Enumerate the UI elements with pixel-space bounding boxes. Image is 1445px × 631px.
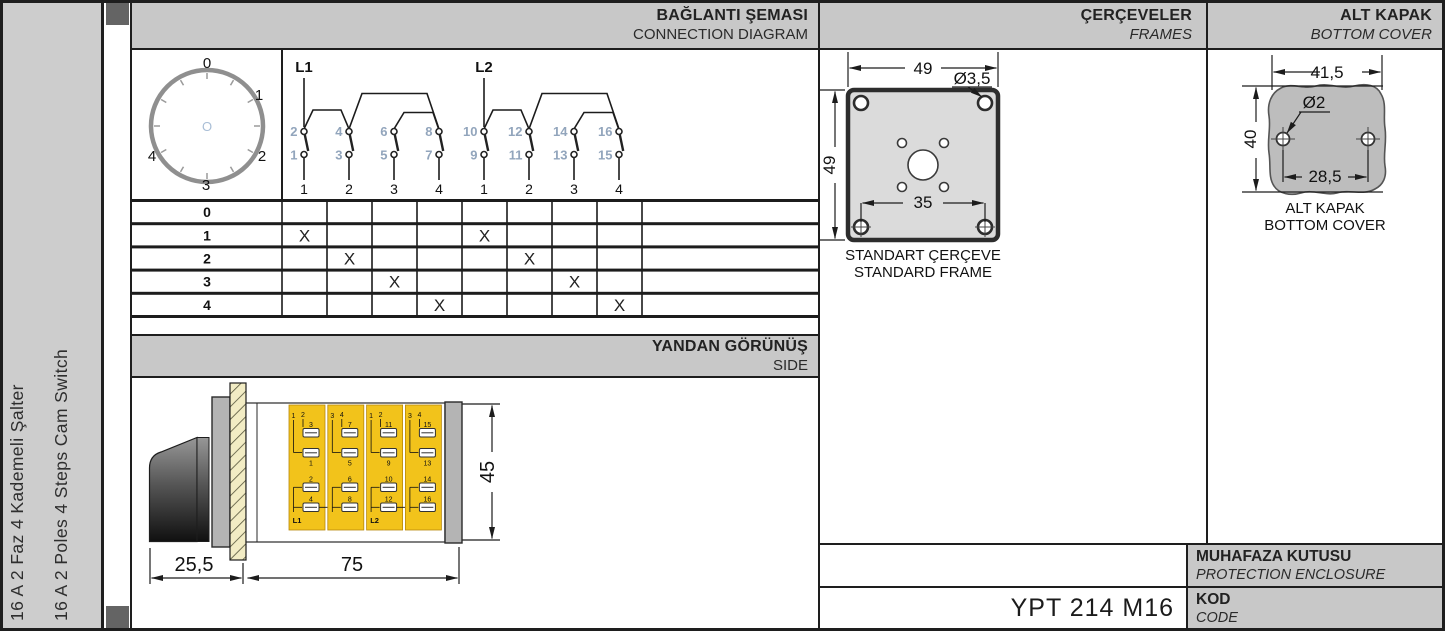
cover-dim-height: 40	[1241, 130, 1260, 149]
module-terminal-number: 15	[424, 422, 432, 429]
contact-groups: L1211432653874L21091121121413316154	[290, 59, 623, 197]
dial-pos-4: 4	[148, 148, 156, 165]
module-pair-b: 2	[301, 412, 305, 419]
protection-en: PROTECTION ENCLOSURE	[1196, 566, 1442, 584]
product-code: YPT 214 M16	[820, 588, 1186, 628]
frame-caption-en: STANDARD FRAME	[854, 264, 992, 281]
module-terminal-number: 7	[348, 422, 352, 429]
header-bottom-cover-tr: ALT KAPAK	[1340, 6, 1432, 26]
table-vline	[281, 199, 283, 318]
header-connection-diagram: BAĞLANTI ŞEMASI CONNECTION DIAGRAM	[132, 3, 818, 50]
terminal-top	[346, 129, 352, 135]
terminal-bottom	[616, 152, 622, 158]
header-frames-tr: ÇERÇEVELER	[1081, 6, 1192, 26]
table-mark: X	[479, 226, 490, 245]
terminal-number-top: 6	[380, 124, 387, 139]
label-code: KOD CODE	[1186, 588, 1442, 628]
terminal-bottom	[391, 152, 397, 158]
table-vline	[506, 199, 508, 318]
output-number: 2	[345, 181, 353, 197]
module-terminal-number: 8	[348, 497, 352, 504]
module-terminal-number: 14	[424, 477, 432, 484]
module-terminal-number: 11	[385, 422, 392, 429]
table-vline	[641, 199, 643, 318]
terminal-number-bottom: 7	[425, 148, 432, 163]
table-mark: X	[389, 273, 400, 292]
module-pair-a: 1	[292, 413, 296, 420]
module-4: 3415131416	[405, 405, 441, 530]
table-hline	[132, 222, 818, 225]
knob	[150, 438, 198, 542]
terminal-top	[436, 129, 442, 135]
module-terminal-number: 1	[309, 461, 313, 468]
module-pair-b: 2	[379, 412, 383, 419]
table-vline	[416, 199, 418, 318]
switch-blade	[485, 135, 488, 151]
output-number: 4	[615, 181, 623, 197]
table-row-label: 2	[203, 251, 211, 267]
dial-tick	[181, 80, 184, 85]
frame-dim-width: 49	[914, 59, 933, 78]
dial-pos-1: 1	[255, 87, 263, 104]
end-cap	[445, 402, 462, 543]
module-terminal-number: 2	[309, 477, 313, 484]
module-pair-b: 4	[340, 412, 344, 419]
binding-mark-top	[106, 3, 129, 25]
product-title-en: 16 A 2 Poles 4 Steps Cam Switch	[51, 349, 72, 621]
table-hline	[132, 292, 818, 295]
terminal-top	[301, 129, 307, 135]
switch-blade	[620, 135, 623, 151]
dim-depth: 25,5	[175, 554, 214, 576]
dim-length: 75	[341, 554, 363, 576]
header-side-tr: YANDAN GÖRÜNÜŞ	[652, 337, 808, 357]
contact-group-l1: L1211432653874	[290, 59, 443, 197]
terminal-bottom	[301, 152, 307, 158]
terminal-bottom	[436, 152, 442, 158]
table-vline	[371, 199, 373, 318]
table-hline	[132, 269, 818, 272]
table-mark: X	[434, 296, 445, 315]
front-plate	[212, 397, 230, 547]
product-title-tr: 16 A 2 Faz 4 Kademeli Şalter	[7, 384, 28, 621]
table-row-label: 0	[203, 204, 211, 220]
terminal-number-top: 8	[425, 124, 432, 139]
side-view-drawing: 123124L1347568121191012L23415131416 25,5…	[132, 378, 818, 628]
output-number: 1	[300, 181, 308, 197]
module-terminal-number: 5	[348, 461, 352, 468]
table-mark: X	[524, 250, 535, 269]
terminal-top	[391, 129, 397, 135]
switch-blade	[395, 135, 398, 151]
protection-tr: MUHAFAZA KUTUSU	[1196, 548, 1442, 566]
datasheet-page: 16 A 2 Faz 4 Kademeli Şalter 16 A 2 Pole…	[0, 0, 1445, 631]
contact-group-l2: L21091121121413316154	[463, 59, 623, 197]
dial-tick	[248, 100, 253, 103]
dial-pos-2: 2	[258, 148, 266, 165]
terminal-bottom	[571, 152, 577, 158]
terminal-bottom	[526, 152, 532, 158]
switch-blade	[350, 135, 353, 151]
module-terminal-number: 3	[309, 422, 313, 429]
header-bottom-cover: ALT KAPAK BOTTOM COVER	[1208, 3, 1442, 50]
output-number: 1	[480, 181, 488, 197]
table-mark: X	[299, 226, 310, 245]
table-hline	[132, 315, 818, 318]
knob-collar	[197, 438, 209, 542]
terminal-number-bottom: 3	[335, 148, 342, 163]
output-number: 4	[435, 181, 443, 197]
module-line-label: L2	[370, 516, 379, 525]
terminal-number-bottom: 5	[380, 148, 387, 163]
terminal-top	[616, 129, 622, 135]
table-mark: X	[569, 273, 580, 292]
table-hline	[132, 245, 818, 248]
frame-dim-hole: Ø3,5	[954, 69, 991, 88]
code-tr: KOD	[1196, 591, 1442, 609]
table-row-label: 3	[203, 274, 211, 290]
module-terminal-number: 16	[424, 497, 432, 504]
terminal-number-top: 14	[553, 124, 568, 139]
module-terminal-number: 6	[348, 477, 352, 484]
module-line-label: L1	[293, 516, 302, 525]
phase-label: L1	[295, 59, 313, 76]
cover-dim-holes: 28,5	[1308, 167, 1341, 186]
output-number: 3	[390, 181, 398, 197]
module-pair-a: 3	[408, 413, 412, 420]
dial-tick	[231, 80, 234, 85]
dial-tick	[161, 150, 166, 153]
bottom-cover-drawing: 28,5 Ø2 41,5 40 ALT KAPAK BOTTOM COVER	[1208, 50, 1442, 543]
terminal-top	[526, 129, 532, 135]
header-connection-tr: BAĞLANTI ŞEMASI	[657, 6, 808, 26]
switch-blade	[575, 135, 578, 151]
standard-frame-drawing: 49 49 35 Ø3,5 STANDART ÇERÇEVE STANDARD …	[820, 50, 1206, 543]
terminal-bottom	[346, 152, 352, 158]
dial-center-mark: O	[202, 119, 212, 134]
terminal-number-top: 10	[463, 124, 477, 139]
header-frames: ÇERÇEVELER FRAMES	[820, 3, 1206, 50]
sidebar: 16 A 2 Faz 4 Kademeli Şalter 16 A 2 Pole…	[3, 3, 104, 628]
header-bottom-cover-en: BOTTOM COVER	[1311, 26, 1432, 45]
table-mark: X	[614, 296, 625, 315]
header-connection-en: CONNECTION DIAGRAM	[633, 26, 808, 45]
cover-caption-en: BOTTOM COVER	[1264, 217, 1386, 234]
switch-blade	[530, 135, 533, 151]
module-pair-b: 4	[417, 412, 421, 419]
table-row-label: 1	[203, 227, 211, 243]
header-frames-en: FRAMES	[1129, 26, 1192, 45]
dial-tick	[248, 150, 253, 153]
binding-mark-bottom	[106, 606, 129, 628]
switch-blade	[440, 135, 443, 151]
terminal-number-top: 4	[335, 124, 343, 139]
dim-height: 45	[477, 461, 499, 483]
header-side-en: SIDE	[773, 357, 808, 376]
terminal-number-bottom: 1	[290, 148, 297, 163]
code-en: CODE	[1196, 609, 1442, 627]
module-terminal-number: 12	[385, 497, 393, 504]
rotary-dial: 0 1 2 3 4 O	[148, 55, 266, 194]
module-pair-a: 1	[369, 413, 373, 420]
cover-caption-tr: ALT KAPAK	[1285, 200, 1364, 217]
table-mark: X	[344, 250, 355, 269]
frame-dim-height: 49	[820, 156, 839, 175]
table-row-label: 4	[203, 297, 211, 313]
cover-dim-hole-d: Ø2	[1303, 93, 1326, 112]
module-terminal-number: 9	[387, 461, 391, 468]
switch-side-profile: 123124L1347568121191012L23415131416	[150, 383, 463, 560]
terminal-top	[571, 129, 577, 135]
terminal-number-top: 2	[290, 124, 297, 139]
table-hline	[132, 199, 818, 202]
header-side-view: YANDAN GÖRÜNÜŞ SIDE	[132, 334, 818, 378]
dial-tick	[161, 100, 166, 103]
module-terminal-number: 13	[424, 461, 432, 468]
table-vline	[596, 199, 598, 318]
table-vline	[551, 199, 553, 318]
panel-hatched	[230, 383, 246, 560]
output-number: 2	[525, 181, 533, 197]
table-vline	[326, 199, 328, 318]
switching-table: 01XX2XX3XX4XX	[132, 199, 818, 318]
module-2: 347568	[328, 405, 364, 530]
cover-dim-width: 41,5	[1310, 63, 1343, 82]
terminal-number-bottom: 13	[553, 148, 567, 163]
terminal-number-bottom: 11	[509, 148, 523, 163]
frame-dim-inner: 35	[914, 193, 933, 212]
dial-tick	[181, 167, 184, 172]
terminal-bottom	[481, 152, 487, 158]
phase-label: L2	[475, 59, 493, 76]
module-pair-a: 3	[330, 413, 334, 420]
connection-diagram: 0 1 2 3 4 O L1211432653874L2109112112141…	[132, 50, 818, 199]
terminal-number-top: 12	[508, 124, 522, 139]
dial-pos-3: 3	[202, 177, 210, 194]
frame-caption-tr: STANDART ÇERÇEVE	[845, 247, 1001, 264]
terminal-number-top: 16	[598, 124, 612, 139]
dial-pos-0: 0	[203, 55, 211, 72]
terminal-number-bottom: 15	[598, 148, 612, 163]
module-terminal-number: 10	[385, 477, 393, 484]
output-number: 3	[570, 181, 578, 197]
dial-tick	[231, 167, 234, 172]
table-vline	[461, 199, 463, 318]
terminal-number-bottom: 9	[470, 148, 477, 163]
module-terminal-number: 4	[309, 497, 313, 504]
label-protection-enclosure: MUHAFAZA KUTUSU PROTECTION ENCLOSURE	[1186, 545, 1442, 586]
switch-blade	[305, 135, 308, 151]
terminal-top	[481, 129, 487, 135]
